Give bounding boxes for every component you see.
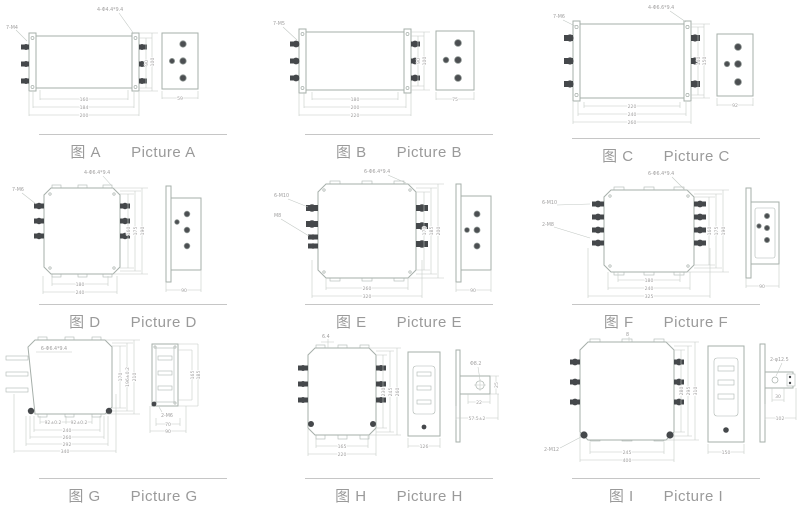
dim-h2: 185 <box>429 227 435 236</box>
dim-h2: 196±0.2 <box>125 367 131 387</box>
width-dimensions: 220 240 260 <box>573 102 691 126</box>
picture-b-cell: 7-M5 180 200 220 90 100 75 <box>266 0 532 164</box>
drawing-g: 6-Φ6.4*9.4 92±0.2 92±0.2 240 260 292 340… <box>0 330 266 476</box>
terminals-left <box>21 44 29 84</box>
dim-h1: 160 <box>707 227 713 236</box>
dim-side: 90 <box>181 288 187 294</box>
dim-w1: 180 <box>351 97 360 103</box>
side-view: 92 <box>717 34 753 109</box>
front-view <box>21 33 147 91</box>
caption-h: 图 HPicture H <box>266 485 532 506</box>
caption-cn: 图 C <box>602 148 634 165</box>
picture-i-cell: 8 2-M12 245 400 280 295 310 <box>532 330 800 506</box>
dim-h1: 140 <box>696 57 702 66</box>
terminals-right <box>416 204 428 248</box>
dim-w2: 400 <box>623 458 632 464</box>
hole-label: 4-Φ6.6*9.4 <box>648 5 674 11</box>
caption-cn: 图 H <box>335 488 367 505</box>
dim-w6: 340 <box>61 449 70 455</box>
row-2: 4-Φ6.4*9.4 7-M6 180 240 160 175 190 <box>0 164 800 330</box>
dim-mid: 150 <box>722 450 731 456</box>
caption-d: 图 DPicture D <box>0 311 266 332</box>
picture-e-cell: 6-M10 M8 6-Φ6.4*9.4 260 320 170 185 200 <box>266 164 532 330</box>
top-dim-label: 8 <box>626 332 629 338</box>
front-view <box>564 21 700 101</box>
dim-w2: 200 <box>351 105 360 111</box>
front-view: 6-Φ6.4*9.4 <box>6 337 112 417</box>
side-thread-label: 2-M6 <box>161 413 173 419</box>
dim-h3: 210 <box>132 373 138 382</box>
terminals-left <box>306 204 318 249</box>
caption-cn: 图 A <box>70 144 101 161</box>
dim-side: 59 <box>177 96 183 102</box>
caption-rule <box>305 478 493 479</box>
thread-label-1: 6-M10 <box>274 193 289 199</box>
dim-h2: 245 <box>388 388 394 397</box>
caption-cn: 图 D <box>69 314 101 331</box>
front-view <box>34 185 130 277</box>
width-dimensions: 180 240 <box>43 276 117 296</box>
dim-bracket-off: 30 <box>775 394 781 400</box>
end-view: 150 <box>708 346 744 456</box>
dim-side: 90 <box>470 288 476 294</box>
caption-en: Picture F <box>664 314 729 331</box>
caption-rule <box>572 138 760 139</box>
dim-w1: 160 <box>80 97 89 103</box>
width-dimensions: 160 184 200 <box>29 90 139 119</box>
dim-bracket-h: 25 <box>494 382 500 388</box>
drawing-a: 7-M4 4-Φ4.4*9.4 160 184 200 90 100 <box>0 0 266 132</box>
caption-f: 图 FPicture F <box>532 311 800 332</box>
dim-w1: 92±0.2 <box>44 420 61 426</box>
hole-label: 6-Φ6.4*9.4 <box>41 346 67 352</box>
dim-h1: 90 <box>416 58 422 64</box>
caption-cn: 图 E <box>336 314 367 331</box>
dim-mid: 126 <box>420 444 429 450</box>
dim-h2: 100 <box>150 58 156 67</box>
dim-w3: 200 <box>80 113 89 119</box>
front-view: 6.4 <box>298 334 386 439</box>
drawing-f: 6-M10 2-M8 6-Φ6.4*9.4 180 240 325 160 17… <box>532 164 800 302</box>
front-view <box>592 187 706 275</box>
dim-h2: 150 <box>702 57 708 66</box>
thread-label-2: M8 <box>274 213 281 219</box>
caption-en: Picture B <box>397 144 462 161</box>
hole-dia-label: 2-φ12.5 <box>770 357 789 363</box>
caption-rule <box>572 478 760 479</box>
caption-c: 图 CPicture C <box>532 145 800 166</box>
dim-w2: 220 <box>338 452 347 458</box>
front-view <box>306 181 428 281</box>
dim-w1: 260 <box>363 286 372 292</box>
dim-w2: 240 <box>76 290 85 296</box>
front-view <box>290 29 420 93</box>
dim-side: 92 <box>732 103 738 109</box>
caption-en: Picture H <box>397 488 463 505</box>
dim-w3: 260 <box>628 120 637 126</box>
side-view: 90 <box>166 186 201 294</box>
hole-label: 4-Φ6.4*9.4 <box>84 170 110 176</box>
side-view: 59 <box>162 33 198 102</box>
caption-rule <box>572 304 760 305</box>
caption-cn: 图 F <box>604 314 634 331</box>
datasheet-page: 7-M4 4-Φ4.4*9.4 160 184 200 90 100 <box>0 0 800 506</box>
dim-w4: 260 <box>63 435 72 441</box>
dim-w1: 180 <box>645 278 654 284</box>
top-dim-label: 6.4 <box>322 334 330 340</box>
dim-h1: 280 <box>679 387 685 396</box>
dim-h2: 175 <box>714 227 720 236</box>
caption-cn: 图 G <box>68 488 100 505</box>
terminals-left <box>34 203 44 239</box>
lead-terminals-left <box>6 356 28 392</box>
dim-w3: 325 <box>645 294 654 300</box>
caption-rule <box>39 304 227 305</box>
dim-h3: 260 <box>395 388 401 397</box>
picture-f-cell: 6-M10 2-M8 6-Φ6.4*9.4 180 240 325 160 17… <box>532 164 800 330</box>
side-view: 90 <box>746 188 779 290</box>
dim-w3: 240 <box>63 428 72 434</box>
dim-w3: 220 <box>351 113 360 119</box>
picture-h-cell: 6.4 165 220 230 245 260 <box>266 330 532 506</box>
hole-dia-label: Φ8.2 <box>470 361 481 367</box>
dim-h2: 295 <box>686 387 692 396</box>
picture-g-cell: 6-Φ6.4*9.4 92±0.2 92±0.2 240 260 292 340… <box>0 330 266 506</box>
drawing-e: 6-M10 M8 6-Φ6.4*9.4 260 320 170 185 200 <box>266 164 532 302</box>
dim-h3: 190 <box>721 227 727 236</box>
row-1: 7-M4 4-Φ4.4*9.4 160 184 200 90 100 <box>0 0 800 164</box>
dim-bracket-pitch: 57.5±2 <box>468 416 485 422</box>
caption-en: Picture D <box>131 314 197 331</box>
caption-rule <box>39 478 227 479</box>
terminals-left <box>570 359 580 406</box>
dim-w1: 220 <box>628 104 637 110</box>
caption-cn: 图 I <box>609 488 634 505</box>
dim-bracket-pitch: 102 <box>776 416 785 422</box>
dim-w2: 320 <box>363 294 372 300</box>
thread-label-1: 6-M10 <box>542 200 557 206</box>
terminals-right <box>674 359 684 406</box>
terminals-left <box>290 41 299 82</box>
bracket-detail: 2-φ12.5 30 102 <box>760 344 796 442</box>
side-view: 2-M6 70 90 165 185 <box>150 344 202 435</box>
drawing-c: 7-M6 4-Φ6.6*9.4 220 240 260 140 150 <box>532 0 800 136</box>
dim-bracket-off: 22 <box>476 400 482 406</box>
terminals-left <box>564 34 574 87</box>
dim-h3: 200 <box>436 227 442 236</box>
drawing-i: 8 2-M12 245 400 280 295 310 <box>532 330 800 476</box>
dim-w1: 245 <box>623 450 632 456</box>
caption-cn: 图 B <box>336 144 367 161</box>
terminals-left <box>298 365 308 403</box>
side-view: 75 <box>436 31 474 103</box>
drawing-h: 6.4 165 220 230 245 260 <box>266 330 532 476</box>
dim-h1: 170 <box>118 373 124 382</box>
dim-w2: 92±0.2 <box>70 420 87 426</box>
dim-w1: 165 <box>338 444 347 450</box>
dim-h1: 90 <box>144 60 150 66</box>
picture-d-cell: 4-Φ6.4*9.4 7-M6 180 240 160 175 190 <box>0 164 266 330</box>
hole-label: 6-Φ6.4*9.4 <box>648 171 674 177</box>
caption-g: 图 GPicture G <box>0 485 266 506</box>
thread-label-2: 2-M8 <box>542 222 554 228</box>
terminals-left <box>592 201 604 247</box>
caption-rule <box>305 304 493 305</box>
dim-w2: 240 <box>645 286 654 292</box>
terminals-right <box>694 201 706 247</box>
dim-h1: 230 <box>381 388 387 397</box>
dim-h2: 175 <box>133 227 139 236</box>
dim-side: 90 <box>759 284 765 290</box>
drawing-b: 7-M5 180 200 220 90 100 75 <box>266 0 532 132</box>
dim-w2: 184 <box>80 105 89 111</box>
dim-side-w2: 90 <box>165 429 171 435</box>
caption-en: Picture I <box>664 488 724 505</box>
caption-en: Picture C <box>664 148 730 165</box>
dim-side-h1: 165 <box>190 371 196 380</box>
picture-a-cell: 7-M4 4-Φ4.4*9.4 160 184 200 90 100 <box>0 0 266 164</box>
side-view: 90 <box>456 184 491 294</box>
caption-b: 图 BPicture B <box>266 141 532 162</box>
thread-label: 7-M6 <box>553 14 565 20</box>
labels: 7-M5 <box>273 21 297 40</box>
end-view: 126 <box>408 352 440 450</box>
dim-h1: 170 <box>422 227 428 236</box>
caption-en: Picture A <box>131 144 196 161</box>
bracket-detail: Φ8.2 25 22 57.5±2 <box>456 350 500 442</box>
dim-w1: 180 <box>76 282 85 288</box>
thread-label: 7-M5 <box>273 21 285 27</box>
width-dimensions: 180 200 220 <box>299 92 411 119</box>
dim-h3: 310 <box>693 387 699 396</box>
front-view: 8 2-M12 <box>544 332 684 453</box>
dim-side-h2: 185 <box>196 371 202 380</box>
caption-a: 图 APicture A <box>0 141 266 162</box>
dim-w5: 292 <box>63 442 72 448</box>
dim-h3: 190 <box>140 227 146 236</box>
dim-h1: 160 <box>126 227 132 236</box>
picture-c-cell: 7-M6 4-Φ6.6*9.4 220 240 260 140 150 <box>532 0 800 164</box>
caption-rule <box>305 134 493 135</box>
hole-label: 6-Φ6.4*9.4 <box>364 169 390 175</box>
caption-en: Picture E <box>397 314 462 331</box>
drawing-d: 4-Φ6.4*9.4 7-M6 180 240 160 175 190 <box>0 164 266 302</box>
dim-side: 75 <box>452 97 458 103</box>
thread-label: 7-M6 <box>12 187 24 193</box>
caption-rule <box>39 134 227 135</box>
hole-label: 4-Φ4.4*9.4 <box>97 7 123 13</box>
dim-h2: 100 <box>422 57 428 66</box>
caption-i: 图 IPicture I <box>532 485 800 506</box>
dim-side-w1: 70 <box>165 422 171 428</box>
caption-en: Picture G <box>131 488 198 505</box>
caption-e: 图 EPicture E <box>266 311 532 332</box>
row-3: 6-Φ6.4*9.4 92±0.2 92±0.2 240 260 292 340… <box>0 330 800 506</box>
dim-w2: 240 <box>628 112 637 118</box>
corner-bolt-label: 2-M12 <box>544 447 559 453</box>
